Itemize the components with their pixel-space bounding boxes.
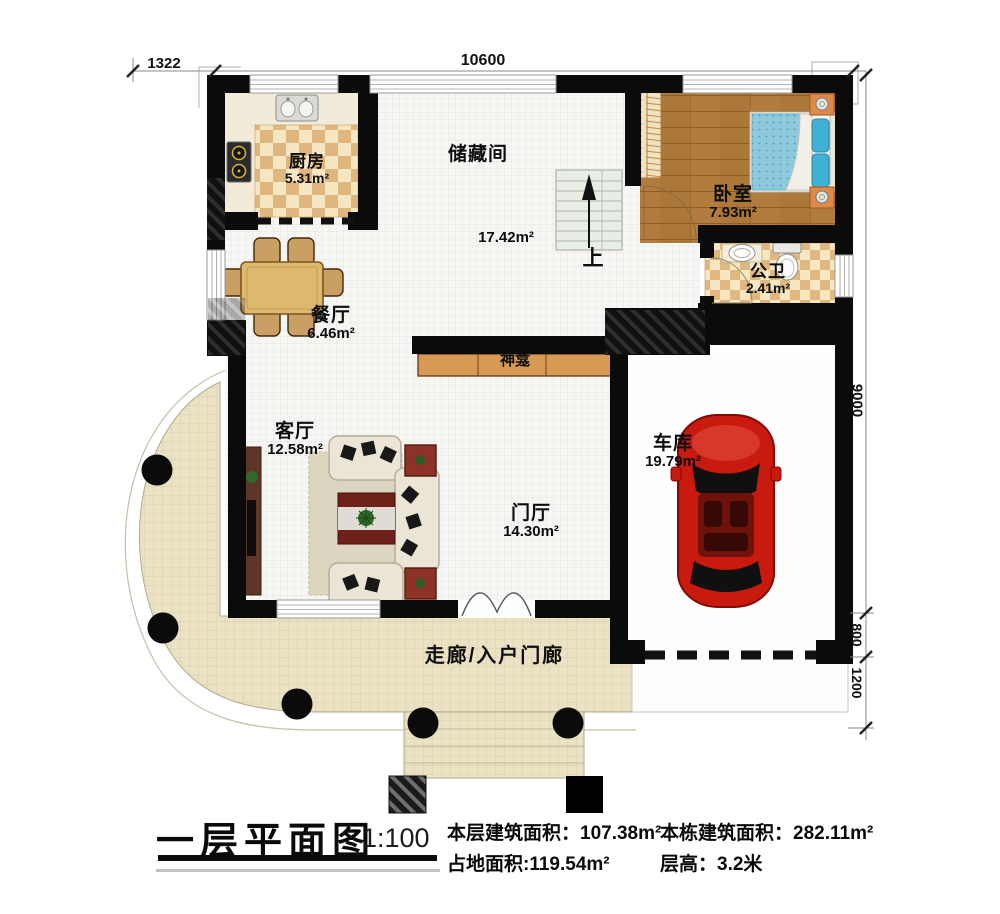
- stat-floor-area: 本层建筑面积：107.38m²: [447, 818, 661, 845]
- pier-solid: [566, 776, 603, 813]
- dim-garage-step: 800: [849, 610, 865, 660]
- kitchen-name: 厨房: [252, 152, 362, 171]
- garage-area: 19.79m²: [617, 454, 729, 471]
- floor-plan-svg: [0, 0, 1000, 914]
- stat-floor-height: 层高：3.2米: [660, 849, 762, 876]
- dim-left-offset: 1322: [128, 55, 200, 72]
- stat-floor-height-label: 层高：: [660, 854, 717, 875]
- stat-floor-area-value: 107.38m²: [580, 823, 661, 844]
- storage-area-label: 17.42m²: [456, 230, 556, 247]
- title-underline-shadow: [156, 869, 440, 872]
- dining-area: 6.46m²: [275, 326, 387, 343]
- bathroom-name: 公卫: [718, 262, 818, 281]
- storage-area: 17.42m²: [456, 230, 556, 247]
- garage-name: 车库: [617, 433, 729, 454]
- dining-label: 餐厅 6.46m²: [275, 305, 387, 343]
- kitchen-sink: [276, 95, 318, 121]
- landing-floor: [628, 180, 642, 308]
- stairs: [556, 170, 622, 250]
- foyer-label: 门厅 14.30m²: [475, 503, 587, 541]
- bed: [750, 112, 838, 192]
- floor-plan: 厨房 5.31m² 储藏间 17.42m² 上 卧室 7.93m² 公卫 2.4…: [0, 0, 1000, 914]
- stat-building-area-value: 282.11m²: [793, 823, 873, 844]
- kitchen-label: 厨房 5.31m²: [252, 152, 362, 187]
- stat-building-area: 本栋建筑面积：282.11m²: [660, 818, 873, 845]
- bedroom-area: 7.93m²: [677, 205, 789, 222]
- plan-scale: 1:100: [362, 823, 430, 854]
- corridor-floor: [640, 243, 700, 308]
- storage-label: 储藏间: [413, 144, 543, 165]
- coffee-table: [338, 493, 395, 544]
- pillow: [812, 154, 829, 187]
- dim-driveway-depth: 1200: [849, 655, 865, 711]
- bathroom-label: 公卫 2.41m²: [718, 262, 818, 297]
- living-name: 客厅: [239, 421, 351, 442]
- tv: [247, 500, 256, 556]
- living-label: 客厅 12.58m²: [239, 421, 351, 459]
- pier-hatched: [389, 776, 426, 813]
- living-area: 12.58m²: [239, 442, 351, 459]
- foyer-area: 14.30m²: [475, 524, 587, 541]
- dim-top-width: 10600: [438, 52, 528, 70]
- shrine-label: 神龛: [458, 353, 572, 370]
- pillow: [812, 119, 829, 152]
- title-underline: [158, 855, 437, 861]
- kitchen-area: 5.31m²: [252, 171, 362, 187]
- driveway: [632, 660, 848, 712]
- stat-footprint-value: 119.54m²: [529, 854, 609, 875]
- stat-building-area-label: 本栋建筑面积：: [660, 823, 793, 844]
- storage-name: 储藏间: [413, 144, 543, 165]
- bathroom-sink: [722, 244, 762, 262]
- stairs-up-label: 上: [578, 247, 608, 271]
- stat-footprint: 占地面积:119.54m²: [447, 849, 610, 876]
- stat-floor-area-label: 本层建筑面积：: [447, 823, 580, 844]
- stat-footprint-label: 占地面积:: [447, 854, 529, 875]
- foyer-name: 门厅: [475, 503, 587, 524]
- bathroom-area: 2.41m²: [718, 281, 818, 297]
- dim-right-height: 9000: [849, 371, 866, 431]
- stove: [227, 142, 251, 182]
- garage-label: 车库 19.79m²: [617, 433, 729, 471]
- porch-label: 走廊/入户门廊: [372, 645, 617, 667]
- bedroom-name: 卧室: [677, 184, 789, 205]
- living-room-set: [309, 436, 439, 607]
- bedroom-label: 卧室 7.93m²: [677, 184, 789, 222]
- stat-floor-height-value: 3.2米: [717, 854, 762, 875]
- dining-name: 餐厅: [275, 305, 387, 326]
- plant: [246, 471, 258, 483]
